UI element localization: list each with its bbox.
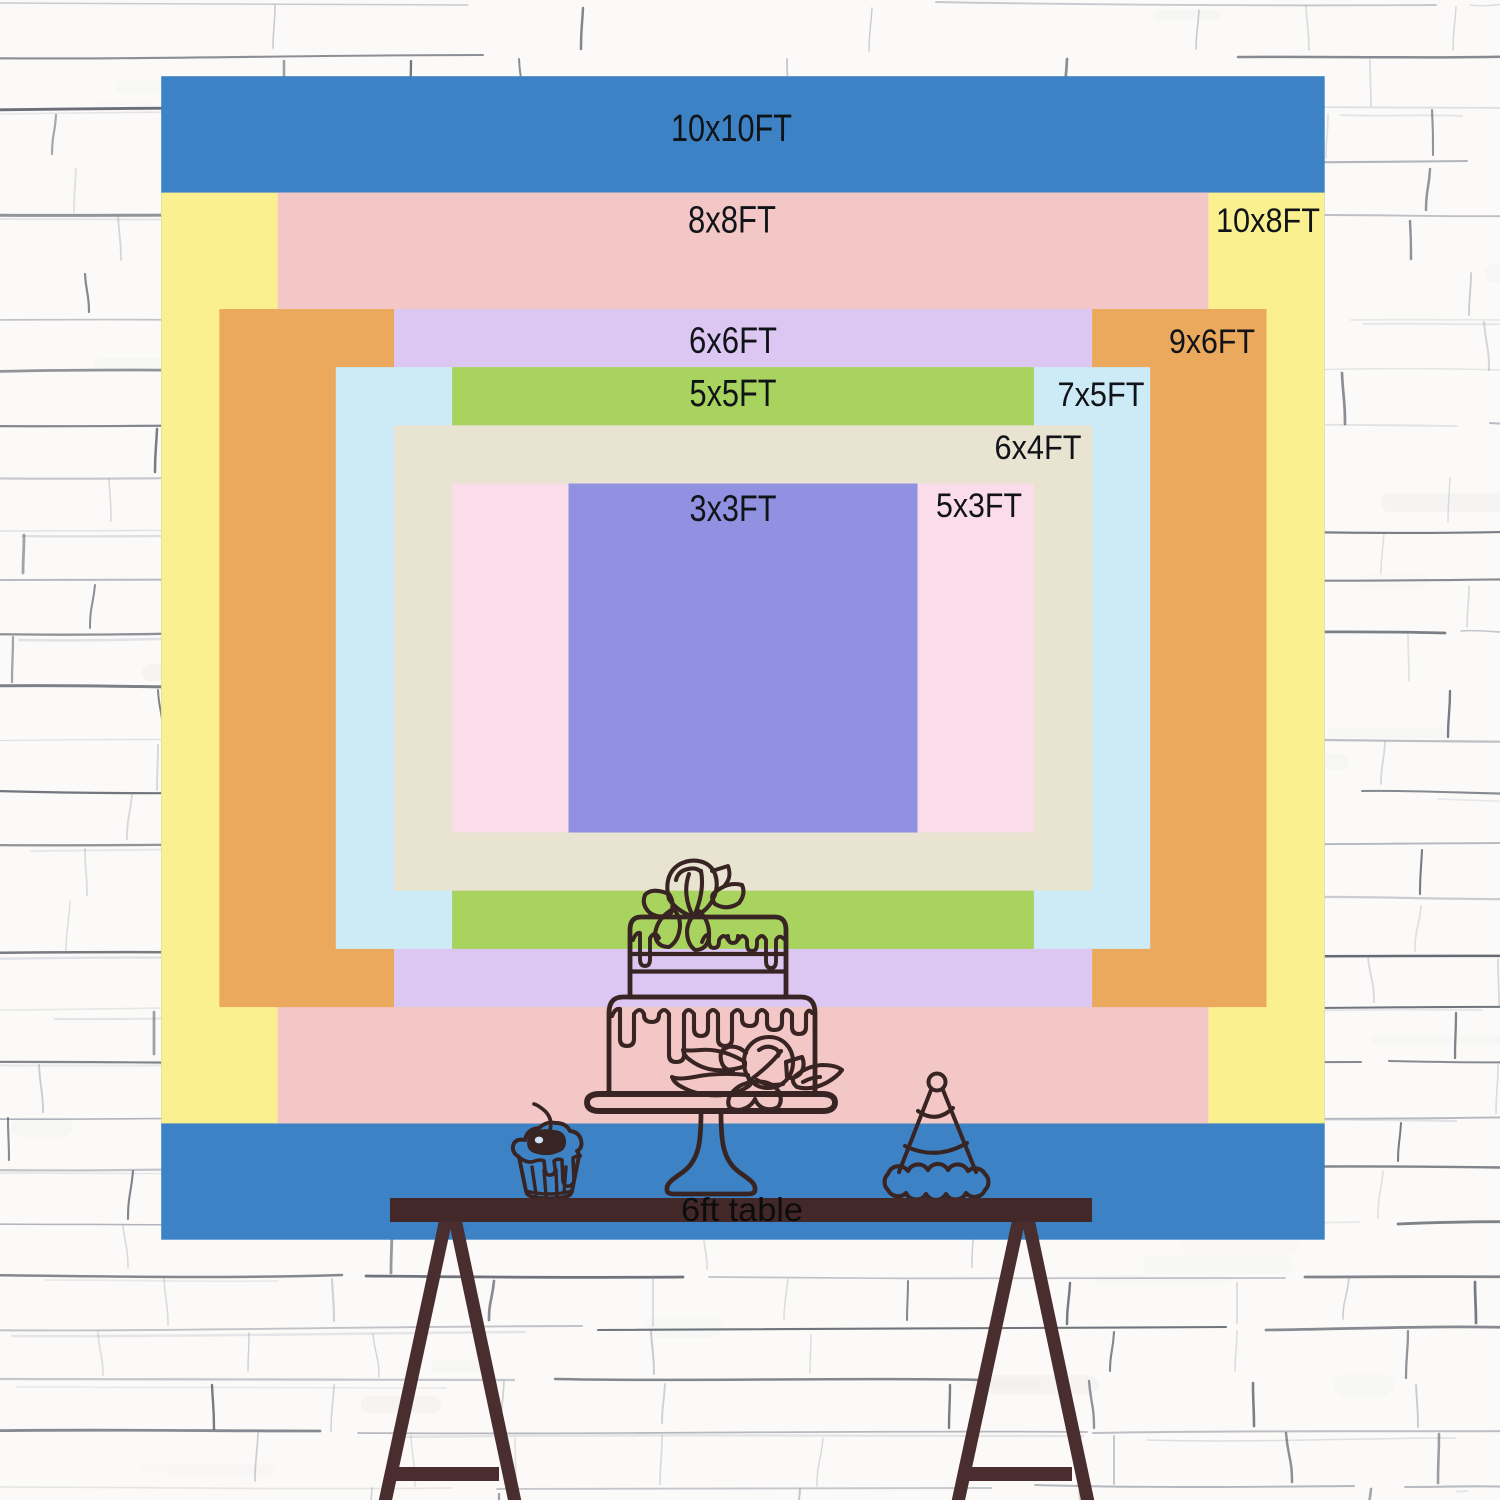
svg-text:6x4FT: 6x4FT	[995, 429, 1082, 467]
svg-text:6ft table: 6ft table	[681, 1191, 803, 1228]
svg-text:9x6FT: 9x6FT	[1169, 323, 1255, 361]
svg-text:5x5FT: 5x5FT	[690, 373, 777, 415]
svg-text:7x5FT: 7x5FT	[1058, 376, 1145, 414]
svg-text:8x8FT: 8x8FT	[688, 199, 776, 241]
svg-text:3x3FT: 3x3FT	[690, 488, 777, 529]
svg-text:10x10FT: 10x10FT	[671, 108, 792, 150]
svg-text:10x8FT: 10x8FT	[1216, 202, 1320, 240]
svg-text:5x3FT: 5x3FT	[936, 487, 1022, 525]
svg-text:6x6FT: 6x6FT	[689, 320, 777, 361]
